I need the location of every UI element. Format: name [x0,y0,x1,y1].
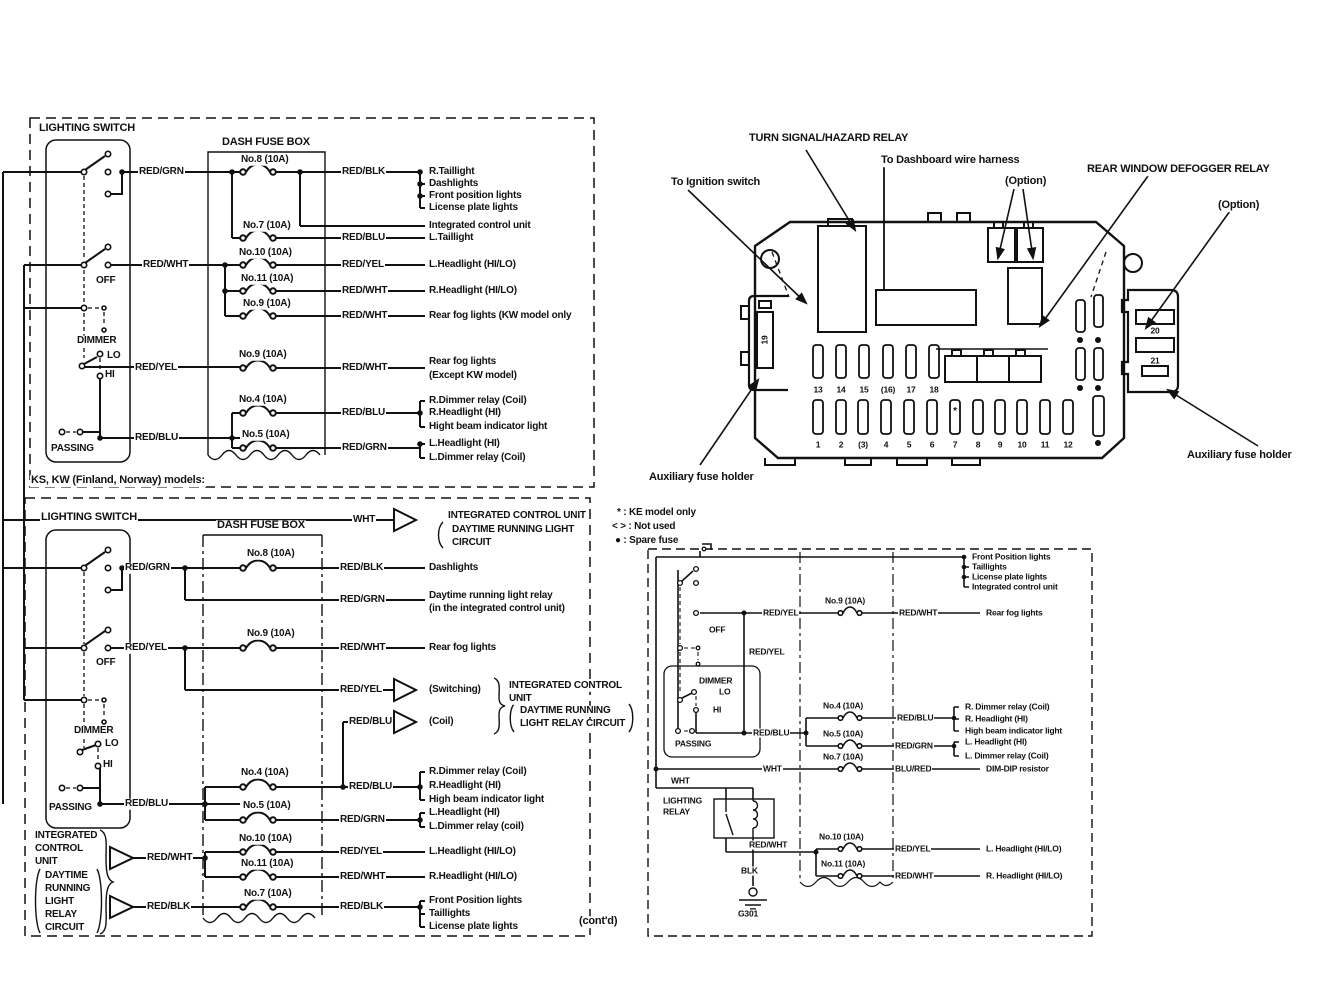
load-label: L.Headlight (HI/LO) [428,847,517,858]
wire-label: RED/BLU [124,799,169,810]
load-label: R.Taillight [428,167,475,178]
wire-label: RED/BLU [348,782,393,793]
load-label: L. Headlight (HI) [964,738,1028,747]
load-label: R.Headlight (HI) [428,408,502,419]
wire-label: BLK [740,867,759,876]
fb-aux-holder-right: Auxiliary fuse holder [1186,450,1293,462]
wire-label: RED/YEL [341,260,385,271]
wire-label: RED/WHT [339,872,386,883]
load-label: L. Dimmer relay (Coil) [964,752,1049,761]
ground-label: G301 [737,910,759,919]
icu-title: UNIT [508,694,533,705]
fuse-number: (16) [880,386,896,395]
load-label: Rear fog lights [428,643,497,654]
wire-label: RED/YEL [134,363,178,374]
icu-title: CONTROL [34,844,84,855]
load-label: L.Headlight (HI) [428,439,501,450]
load-label: High beam indicator light [428,795,545,806]
fuse-label: No.11 (10A) [240,859,294,870]
fuse-label: No.4 (10A) [238,395,287,406]
load-label: Rear fog lights (KW model only [428,311,572,322]
wire-label: RED/GRN [894,742,934,751]
switch-label: LO [104,739,120,750]
wire-label: BLU/RED [894,765,932,774]
switch-label: PASSING [50,444,95,455]
icu-title: DAYTIME RUNNING LIGHT [451,525,575,536]
switch-label: OFF [95,658,116,669]
fusebox1-title: DASH FUSE BOX [221,137,311,149]
load-label: Front Position lights [971,553,1051,562]
icu-title: CIRCUIT [451,538,492,549]
load-label: R. Dimmer relay (Coil) [964,703,1050,712]
wire-label: RED/WHT [341,286,388,297]
wire-label: WHT [670,777,691,786]
wire-label: RED/GRN [138,167,185,178]
load-label: Taillights [428,909,471,920]
fuse-label: No.8 (10A) [246,549,295,560]
fuse-label: No.10 (10A) [818,833,865,842]
load-label: License plate lights [428,203,519,214]
switch-label: LO [718,688,731,697]
load-label: L.Dimmer relay (Coil) [428,453,526,464]
load-label: DIM-DIP resistor [985,765,1050,774]
fuse-label: No.8 (10A) [240,155,289,166]
load-label: Dashlights [428,563,479,574]
load-label: Dashlights [428,179,479,190]
load-label: R.Headlight (HI/LO) [428,286,518,297]
legend-spare: ● : Spare fuse [614,536,679,547]
fuse-number: 6 [929,441,936,450]
fuse-number: 11 [1040,441,1051,450]
wire-label: RED/YEL [894,845,931,854]
wire-label: RED/BLK [339,902,384,913]
switch-label: OFF [95,276,116,287]
wire-label: RED/BLU [341,233,386,244]
section2-title: LIGHTING SWITCH [40,512,138,524]
fuse-number: 18 [928,386,939,395]
load-label: Front position lights [428,191,522,202]
fuse-label: No.9 (10A) [246,629,295,640]
load-label: (Coil) [428,717,454,728]
wire-label: RED/WHT [341,363,388,374]
labels-layer: LIGHTING SWITCHDASH FUSE BOXNo.8 (10A)RE… [0,0,1344,1008]
load-label: R.Dimmer relay (Coil) [428,767,528,778]
load-label: R.Dimmer relay (Coil) [428,396,528,407]
load-label: Integrated control unit [428,221,532,232]
fuse-number: 20 [1149,327,1160,336]
fuse-label: No.9 (10A) [238,350,287,361]
fuse-label: No.10 (10A) [238,248,293,259]
fuse-label: No.11 (10A) [820,860,866,869]
wire-label: RED/WHT [894,872,934,881]
wire-label: RED/GRN [339,595,386,606]
fuse-label: No.7 (10A) [243,889,292,900]
load-label: R.Headlight (HI/LO) [428,872,518,883]
fuse-number: 13 [812,386,823,395]
wire-label: RED/WHT [142,260,189,271]
legend-ke: * : KE model only [616,508,697,519]
load-label: R. Headlight (HI) [964,715,1029,724]
wire-label: WHT [352,515,376,526]
fuse-label: No.11 (10A) [240,274,294,285]
icu-title: INTEGRATED [34,831,98,842]
fuse-number: 15 [858,386,869,395]
wire-label: RED/YEL [124,643,168,654]
fb-turn-signal-relay: TURN SIGNAL/HAZARD RELAY [748,133,909,145]
load-label: R. Headlight (HI/LO) [985,872,1063,881]
load-label: License plate lights [971,573,1048,582]
wire-label: RED/BLU [134,433,179,444]
fb-aux-holder-left: Auxiliary fuse holder [648,472,755,484]
load-label: L.Headlight (HI/LO) [428,260,517,271]
wire-label: RED/WHT [748,841,788,850]
fuse-number: 4 [883,441,890,450]
switch-label: LO [106,351,122,362]
legend-notused: < > : Not used [611,522,676,533]
fuse-number: 21 [1149,357,1160,366]
wire-label: WHT [762,765,783,774]
load-label: L.Taillight [428,233,474,244]
wire-label: RED/YEL [748,648,785,657]
icu-title: INTEGRATED CONTROL UNIT [447,511,587,522]
icu-title: CIRCUIT [44,923,85,934]
switch-label: HI [104,370,116,381]
icu-title: UNIT [34,857,59,868]
switch-label: PASSING [674,740,712,749]
load-label: (Except KW model) [428,371,518,382]
fuse-label: No.4 (10A) [240,768,289,779]
load-label: R.Headlight (HI) [428,781,502,792]
load-label: High beam indicator light [964,727,1063,736]
fb-dashboard-harness: To Dashboard wire harness [880,155,1020,167]
load-label: License plate lights [428,922,519,933]
fb-option: (Option) [1004,176,1047,188]
wire-label: RED/BLU [752,729,790,738]
fuse-number: 9 [997,441,1004,450]
icu-title: LIGHT [44,897,75,908]
switch-label: DIMMER [698,677,733,686]
wire-label: RED/BLK [146,902,191,913]
fb-option: (Option) [1217,200,1260,212]
relay-title: RELAY [662,808,691,817]
fuse-label: No.5 (10A) [822,730,864,739]
fuse-label: No.5 (10A) [242,801,291,812]
load-label: Daytime running light relay [428,591,554,602]
wire-label: RED/WHT [146,853,193,864]
load-label: Rear fog lights [428,357,497,368]
icu-title: DAYTIME [44,871,89,882]
fuse-number: 1 [815,441,822,450]
wire-label: RED/WHT [339,643,386,654]
icu-title: RELAY [44,910,78,921]
fuse-label: No.10 (10A) [238,834,293,845]
load-label: Front Position lights [428,896,523,907]
switch-label: HI [712,706,722,715]
switch-label: DIMMER [76,336,117,347]
fuse-label: No.5 (10A) [241,430,290,441]
load-label: L.Headlight (HI) [428,808,501,819]
fuse-number: 19 [761,334,770,345]
fuse-label: No.9 (10A) [824,597,866,606]
fuse-label: No.9 (10A) [242,299,291,310]
load-label: L. Headlight (HI/LO) [985,845,1062,854]
fuse-number: 14 [835,386,846,395]
switch-label: DIMMER [73,726,114,737]
contd-note: (cont'd) [578,916,618,928]
load-label: Rear fog lights [985,609,1044,618]
fb-ignition: To Ignition switch [670,177,761,189]
fuse-number: 12 [1062,441,1073,450]
icu-title: INTEGRATED CONTROL [508,681,623,692]
fuse-number: 2 [838,441,845,450]
wire-label: RED/YEL [339,847,383,858]
wire-label: RED/BLU [896,714,934,723]
switch-label: HI [102,760,114,771]
fuse-label: No.4 (10A) [822,702,864,711]
wire-label: RED/WHT [341,311,388,322]
icu-title: DAYTIME RUNNING [519,706,612,717]
icu-title: RUNNING [44,884,91,895]
wire-label: RED/WHT [898,609,938,618]
load-label: L.Dimmer relay (coil) [428,822,525,833]
fuse-number: 8 [975,441,982,450]
wiring-diagram-page: LIGHTING SWITCHDASH FUSE BOXNo.8 (10A)RE… [0,0,1344,1008]
wire-label: RED/BLU [348,717,393,728]
fuse-label: No.7 (10A) [822,753,864,762]
fuse-number: 7 [952,441,959,450]
icu-title: LIGHT RELAY CIRCUIT [519,719,626,730]
fuse-number: 10 [1016,441,1027,450]
load-label: (in the integrated control unit) [428,604,566,615]
section1-title: LIGHTING SWITCH [38,123,136,135]
wire-label: RED/BLK [339,563,384,574]
switch-label: OFF [708,626,726,635]
wire-label: RED/BLK [341,167,386,178]
wire-label: RED/GRN [124,563,171,574]
load-label: Integrated control unit [971,583,1059,592]
fuse-number: 17 [905,386,916,395]
wire-label: RED/YEL [762,609,799,618]
load-label: Taillights [971,563,1008,572]
wire-label: RED/GRN [339,815,386,826]
fusebox2-title: DASH FUSE BOX [216,520,306,532]
fuse-number: 5 [906,441,913,450]
switch-label: PASSING [48,803,93,814]
load-label: Hight beam indicator light [428,422,548,433]
ke-model-asterisk: * [952,407,958,418]
wire-label: RED/BLU [341,408,386,419]
relay-title: LIGHTING [662,797,703,806]
wire-label: RED/GRN [341,443,388,454]
fuse-number: (3) [857,441,869,450]
fuse-label: No.7 (10A) [242,221,291,232]
wire-label: RED/YEL [339,685,383,696]
models-note: KS, KW (Finland, Norway) models: [30,475,206,487]
load-label: (Switching) [428,685,482,696]
fb-defogger-relay: REAR WINDOW DEFOGGER RELAY [1086,164,1271,176]
